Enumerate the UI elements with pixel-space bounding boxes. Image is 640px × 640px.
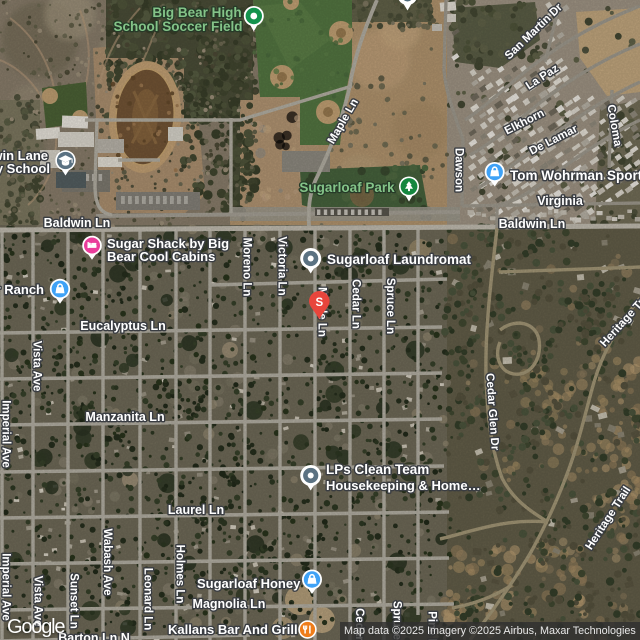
svg-text:Imperial Ave: Imperial Ave (0, 400, 12, 468)
svg-text:Leonard Ln: Leonard Ln (142, 568, 154, 631)
svg-text:Vista Ave: Vista Ave (31, 341, 43, 392)
svg-text:Manzanita Ln: Manzanita Ln (85, 410, 164, 424)
svg-text:LPs Clean Team: LPs Clean Team (326, 462, 429, 477)
svg-text:r Ranch: r Ranch (0, 282, 44, 297)
svg-text:Bear Cool Cabins: Bear Cool Cabins (107, 249, 215, 264)
svg-text:Sugarloaf Laundromat: Sugarloaf Laundromat (327, 252, 472, 267)
svg-text:Imperial Ave: Imperial Ave (0, 553, 12, 621)
svg-text:y School: y School (0, 161, 50, 176)
svg-text:Wabash Ave: Wabash Ave (101, 528, 113, 595)
svg-text:Victoria Ln: Victoria Ln (276, 236, 288, 295)
svg-text:Virginia: Virginia (537, 194, 584, 208)
svg-text:Magnolia Ln: Magnolia Ln (193, 597, 266, 611)
svg-text:Housekeeping & Home…: Housekeeping & Home… (326, 478, 481, 493)
svg-text:School Soccer Field: School Soccer Field (113, 19, 242, 34)
svg-text:Laurel Ln: Laurel Ln (168, 503, 224, 517)
svg-text:Barton Ln N: Barton Ln N (58, 631, 130, 640)
svg-text:Baldwin Ln: Baldwin Ln (44, 216, 111, 230)
svg-text:Big Bear High: Big Bear High (152, 5, 241, 20)
svg-text:Sugarloaf Honey: Sugarloaf Honey (197, 576, 301, 591)
svg-text:Map data ©2025 Imagery ©2025: Map data ©2025 Imagery ©2025 Airbus, Max… (344, 625, 636, 637)
svg-text:S: S (315, 297, 323, 309)
svg-text:Holmes Ln: Holmes Ln (174, 545, 186, 604)
svg-text:Spruce Ln: Spruce Ln (384, 278, 396, 334)
svg-text:Google: Google (7, 616, 65, 638)
svg-text:Sunset Ln: Sunset Ln (68, 573, 80, 629)
svg-text:Sugarloaf Park: Sugarloaf Park (299, 180, 395, 195)
svg-text:Dawson: Dawson (453, 148, 465, 192)
svg-text:Moreno Ln: Moreno Ln (241, 238, 253, 297)
svg-text:Tom Wohrman Sports: Tom Wohrman Sports (510, 168, 640, 183)
svg-text:Kallans Bar And Grill: Kallans Bar And Grill (168, 622, 298, 637)
svg-text:Cedar Ln: Cedar Ln (350, 279, 362, 329)
svg-text:Baldwin Ln: Baldwin Ln (499, 217, 566, 231)
svg-text:Eucalyptus Ln: Eucalyptus Ln (80, 319, 165, 333)
